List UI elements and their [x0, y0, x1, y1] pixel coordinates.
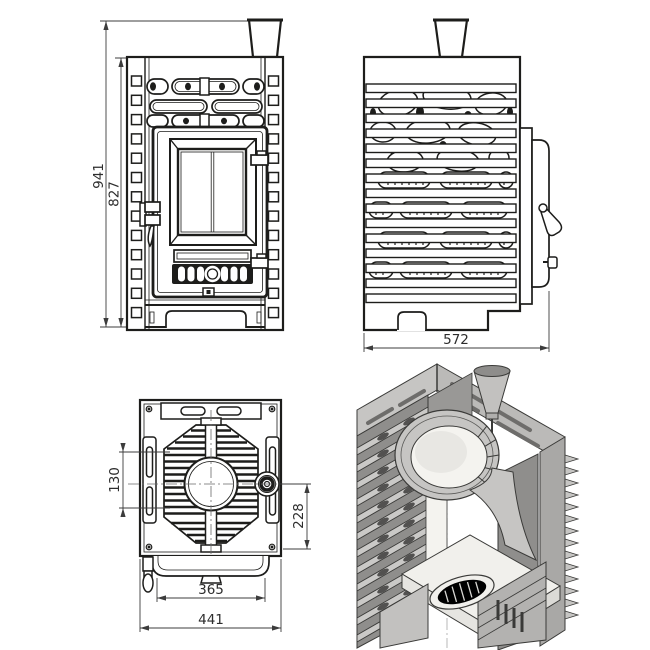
grille-bars: [366, 84, 516, 303]
latch-knob-side: [548, 257, 557, 268]
handle-top-view: [143, 557, 153, 571]
technical-drawing: 941 827: [0, 0, 650, 650]
dim-flue-offset: 228: [291, 503, 307, 529]
dim-overall-height: 941: [91, 163, 107, 189]
dim-stone-opening: 130: [107, 467, 123, 493]
glass-window: [178, 149, 246, 235]
air-vent-row: [172, 264, 253, 284]
stove-door: [140, 127, 268, 297]
dim-overall-width: 441: [198, 612, 224, 628]
base-side: [397, 312, 426, 331]
dim-depth: 572: [443, 332, 469, 348]
dim-body-height: 827: [107, 181, 123, 207]
chimney-flue: [247, 20, 283, 57]
chimney-flue-side: [433, 20, 469, 57]
top-grille-front: [147, 78, 264, 128]
dim-door-width: 365: [198, 582, 224, 598]
